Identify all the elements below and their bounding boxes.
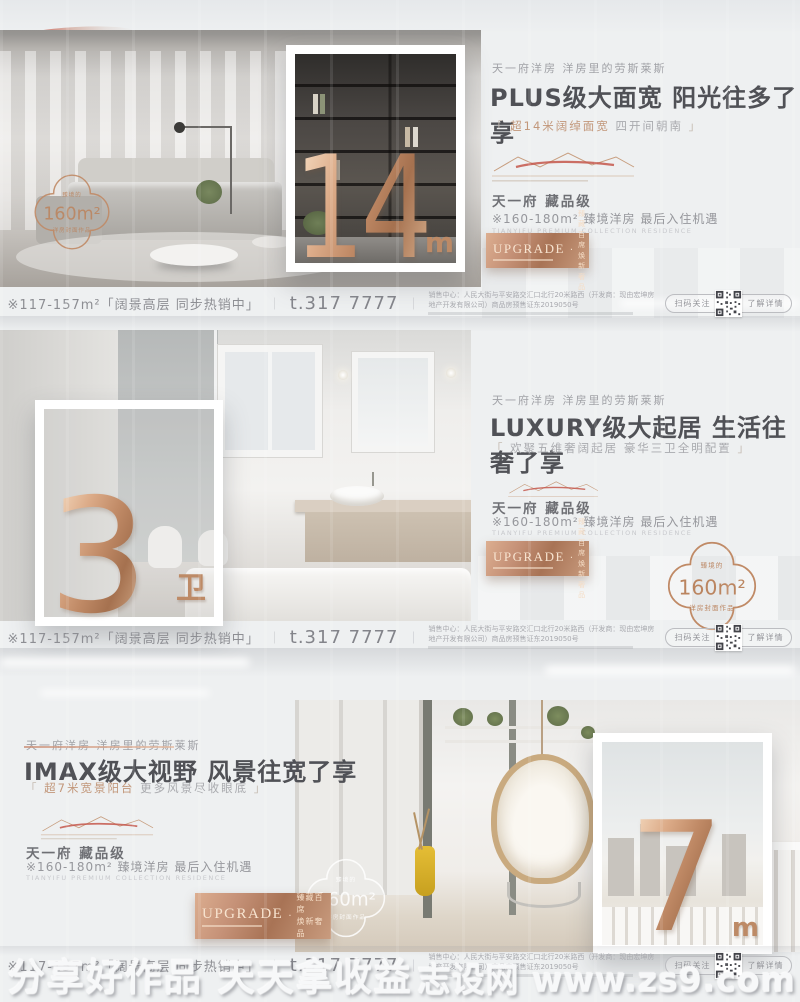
badge-top-label: 臻境的 (701, 561, 724, 570)
light-streak (545, 666, 795, 675)
sales-address: 销售中心：人民大街与平安路交汇口北行20米路西（开发商：现由宏坤房地产开发有限公… (428, 625, 656, 648)
plaque-line: 焕新奢品 (578, 251, 586, 293)
qr-capsule: 扫码关注 了解详情 (665, 628, 792, 647)
number-frame-7m: 7 m (593, 733, 772, 954)
qr-code-icon (715, 290, 742, 317)
wall-light (446, 368, 456, 378)
strike-line (24, 746, 174, 748)
light-streak (40, 690, 210, 696)
qr-right-label: 了解详情 (747, 298, 783, 309)
bracket: 「 (25, 781, 39, 795)
floor-lamp-shape (174, 122, 185, 133)
panel-headline: PLUS级大面宽 阳光往多了享 (490, 78, 800, 148)
separator: ｜ (269, 629, 281, 646)
plant-shape (487, 712, 503, 726)
number-frame-3wei: 3 卫 (35, 400, 223, 626)
bracket: 」 (254, 781, 268, 795)
light-streak (0, 658, 250, 667)
eyebrow-text: 天一府洋房 洋房里的劳斯莱斯 (26, 737, 800, 753)
plaque-caps-line (202, 925, 262, 927)
badge-value: 160m² (43, 204, 100, 224)
separator: ｜ (407, 629, 419, 646)
address-text: 销售中心：人民大街与平安路交汇口北行20米路西（开发商：现由宏坤房地产开发有限公… (428, 625, 654, 642)
plaque-dot: · (570, 553, 573, 564)
unit-range-text: ※117-157m²「阔景高层 同步热销中」 (8, 294, 260, 313)
plaque-title: UPGRADE (493, 241, 565, 257)
panel-subline: 「 欢聚五维奢阔起居 豪华三卫全明配置 」 (491, 440, 751, 456)
banner-panel-3: 臻境的 160m² 洋房封面作品 7 m 天一府洋房 洋房里的劳斯莱斯 IMAX… (0, 0, 800, 16)
subline-rest: 更多风景尽收眼底 (140, 781, 248, 795)
plaque-side-text: 臻藏百席 焕新奢品 (297, 892, 324, 940)
plaque-dot: · (570, 245, 573, 256)
plaque-main: UPGRADE (202, 906, 283, 927)
area-quatrefoil-badge: 臻境的 160m² 洋房封面作品 (26, 166, 118, 258)
bracket: 「 (491, 119, 505, 133)
big-number: 14 (293, 151, 428, 267)
plant-shape (453, 708, 473, 726)
qr-code-icon (715, 624, 742, 651)
qr-capsule: 扫码关注 了解详情 (665, 294, 792, 313)
building-shape (722, 834, 746, 896)
unit-range-text: ※117-157m²「阔景高层 同步热销中」 (8, 628, 260, 647)
floor-lamp-shape (180, 126, 232, 128)
watermark-site-text: 志设网 www.zs9.com (418, 953, 796, 1001)
subline-highlight: 欢聚五维奢阔起居 (510, 441, 618, 455)
subline-rest: 四开间朝南 (615, 119, 683, 133)
big-number-unit: m (732, 913, 759, 943)
subline-rest: 豪华三卫全明配置 (624, 441, 732, 455)
plaque-line: 臻藏百席 (297, 892, 324, 916)
plaque-main: UPGRADE (493, 549, 565, 569)
panel-subline: 「 超14米阔绰面宽 四开间朝南 」 (491, 118, 702, 134)
project-name: 天一府 藏品级 (492, 190, 592, 210)
bracket: 」 (737, 441, 751, 455)
qr-left-label: 扫码关注 (674, 298, 710, 309)
upgrade-plaque: UPGRADE · 臻藏百席 焕新奢品 (195, 893, 331, 939)
floor-lamp-shape (230, 126, 232, 214)
number-frame-14m: 14 m (286, 45, 465, 272)
panel-subline: 「 超7米宽景阳台 更多风景尽收眼底 」 (25, 780, 267, 796)
upgrade-plaque: UPGRADE · 臻藏百席 焕新奢品 (486, 541, 589, 576)
plaque-side-text: 臻藏百席 焕新奢品 (578, 517, 586, 601)
badge-bottom-label: 洋房封面作品 (53, 226, 92, 234)
project-detail: ※160-180m² 臻境洋房 最后入住机遇 (492, 513, 718, 530)
info-strip: ※117-157m²「阔景高层 同步热销中」 ｜ t.317 7777 ｜ 销售… (0, 622, 800, 652)
wall-light (338, 370, 348, 380)
yellow-vase-shape (415, 846, 435, 896)
big-number: 3 (48, 493, 143, 623)
plaque-side-text: 臻藏百席 焕新奢品 (578, 209, 586, 293)
big-number-unit: m (425, 226, 454, 259)
address-text: 销售中心：人民大街与平安路交汇口北行20米路西（开发商：现由宏坤房地产开发有限公… (428, 291, 654, 308)
sales-address: 销售中心：人民大街与平安路交汇口北行20米路西（开发商：现由宏坤房地产开发有限公… (428, 291, 656, 314)
project-detail: ※160-180m² 臻境洋房 最后入住机遇 (492, 210, 718, 227)
window-shape (218, 345, 322, 457)
plaque-caps-line (493, 567, 553, 569)
phone-number: t.317 7777 (290, 293, 399, 314)
badge-top-label: 臻境的 (336, 876, 356, 884)
big-number-unit: 卫 (176, 563, 206, 607)
address-fineprint (428, 312, 633, 315)
plaque-line: 焕新奢品 (297, 916, 324, 940)
eyebrow-text: 天一府洋房 洋房里的劳斯莱斯 (492, 60, 667, 76)
badge-top-label: 臻境的 (62, 190, 81, 198)
plant-shelf-shape (445, 726, 595, 729)
vanity-base-shape (305, 512, 471, 562)
plaque-title: UPGRADE (493, 549, 565, 565)
address-fineprint (428, 646, 633, 649)
upgrade-plaque: UPGRADE · 臻藏百席 焕新奢品 (486, 233, 589, 268)
plaque-caps-line (493, 259, 553, 261)
separator: ｜ (269, 295, 281, 312)
faucet-shape (372, 472, 374, 486)
window-shape (352, 352, 434, 452)
phone-number: t.317 7777 (290, 627, 399, 648)
bathtub-shape (185, 568, 471, 621)
plaque-main: UPGRADE (493, 241, 565, 261)
project-detail-en: TIANYIFU PREMIUM COLLECTION RESIDENCE (26, 874, 226, 882)
villa-sketch-icon (488, 147, 638, 185)
plaque-title: UPGRADE (202, 906, 283, 923)
villa-sketch-icon (22, 812, 172, 842)
bracket: 」 (689, 119, 703, 133)
plaque-line: 焕新奢品 (578, 559, 586, 601)
coffee-table-shape (150, 244, 238, 266)
qr-left-label: 扫码关注 (674, 632, 710, 643)
badge-value: 160m² (678, 576, 745, 600)
hanging-egg-chair-shape (491, 754, 595, 884)
plaque-line: 臻藏百席 (578, 517, 586, 559)
info-strip: ※117-157m²「阔景高层 同步热销中」 ｜ t.317 7777 ｜ 销售… (0, 288, 800, 318)
subline-highlight: 超14米阔绰面宽 (510, 119, 610, 133)
plaque-line: 臻藏百席 (578, 209, 586, 251)
qr-right-label: 了解详情 (747, 632, 783, 643)
project-detail: ※160-180m² 臻境洋房 最后入住机遇 (26, 858, 252, 875)
basin-shape (330, 486, 384, 506)
badge-bottom-label: 洋房封面作品 (326, 913, 366, 921)
real-estate-poster: 臻境的 160m² 洋房封面作品 14 m 天一府洋房 洋房里的劳斯莱斯 PLU… (0, 0, 800, 1002)
plant-shape (547, 706, 569, 726)
subline-highlight: 超7米宽景阳台 (44, 781, 134, 795)
watermark-share-text: 分享好作品 天天拿收益 (8, 947, 413, 1001)
badge-bottom-label: 洋房封面作品 (689, 603, 734, 612)
plant-shape (196, 180, 222, 204)
separator: ｜ (407, 295, 419, 312)
big-number: 7 (628, 816, 719, 941)
chair-stand-shape (507, 882, 581, 908)
bracket: 「 (491, 441, 505, 455)
book-spine (313, 94, 318, 114)
book-spine (320, 94, 325, 114)
vanity-counter-shape (295, 500, 471, 512)
plaque-dot: · (288, 911, 291, 922)
eyebrow-text: 天一府洋房 洋房里的劳斯莱斯 (492, 392, 667, 408)
